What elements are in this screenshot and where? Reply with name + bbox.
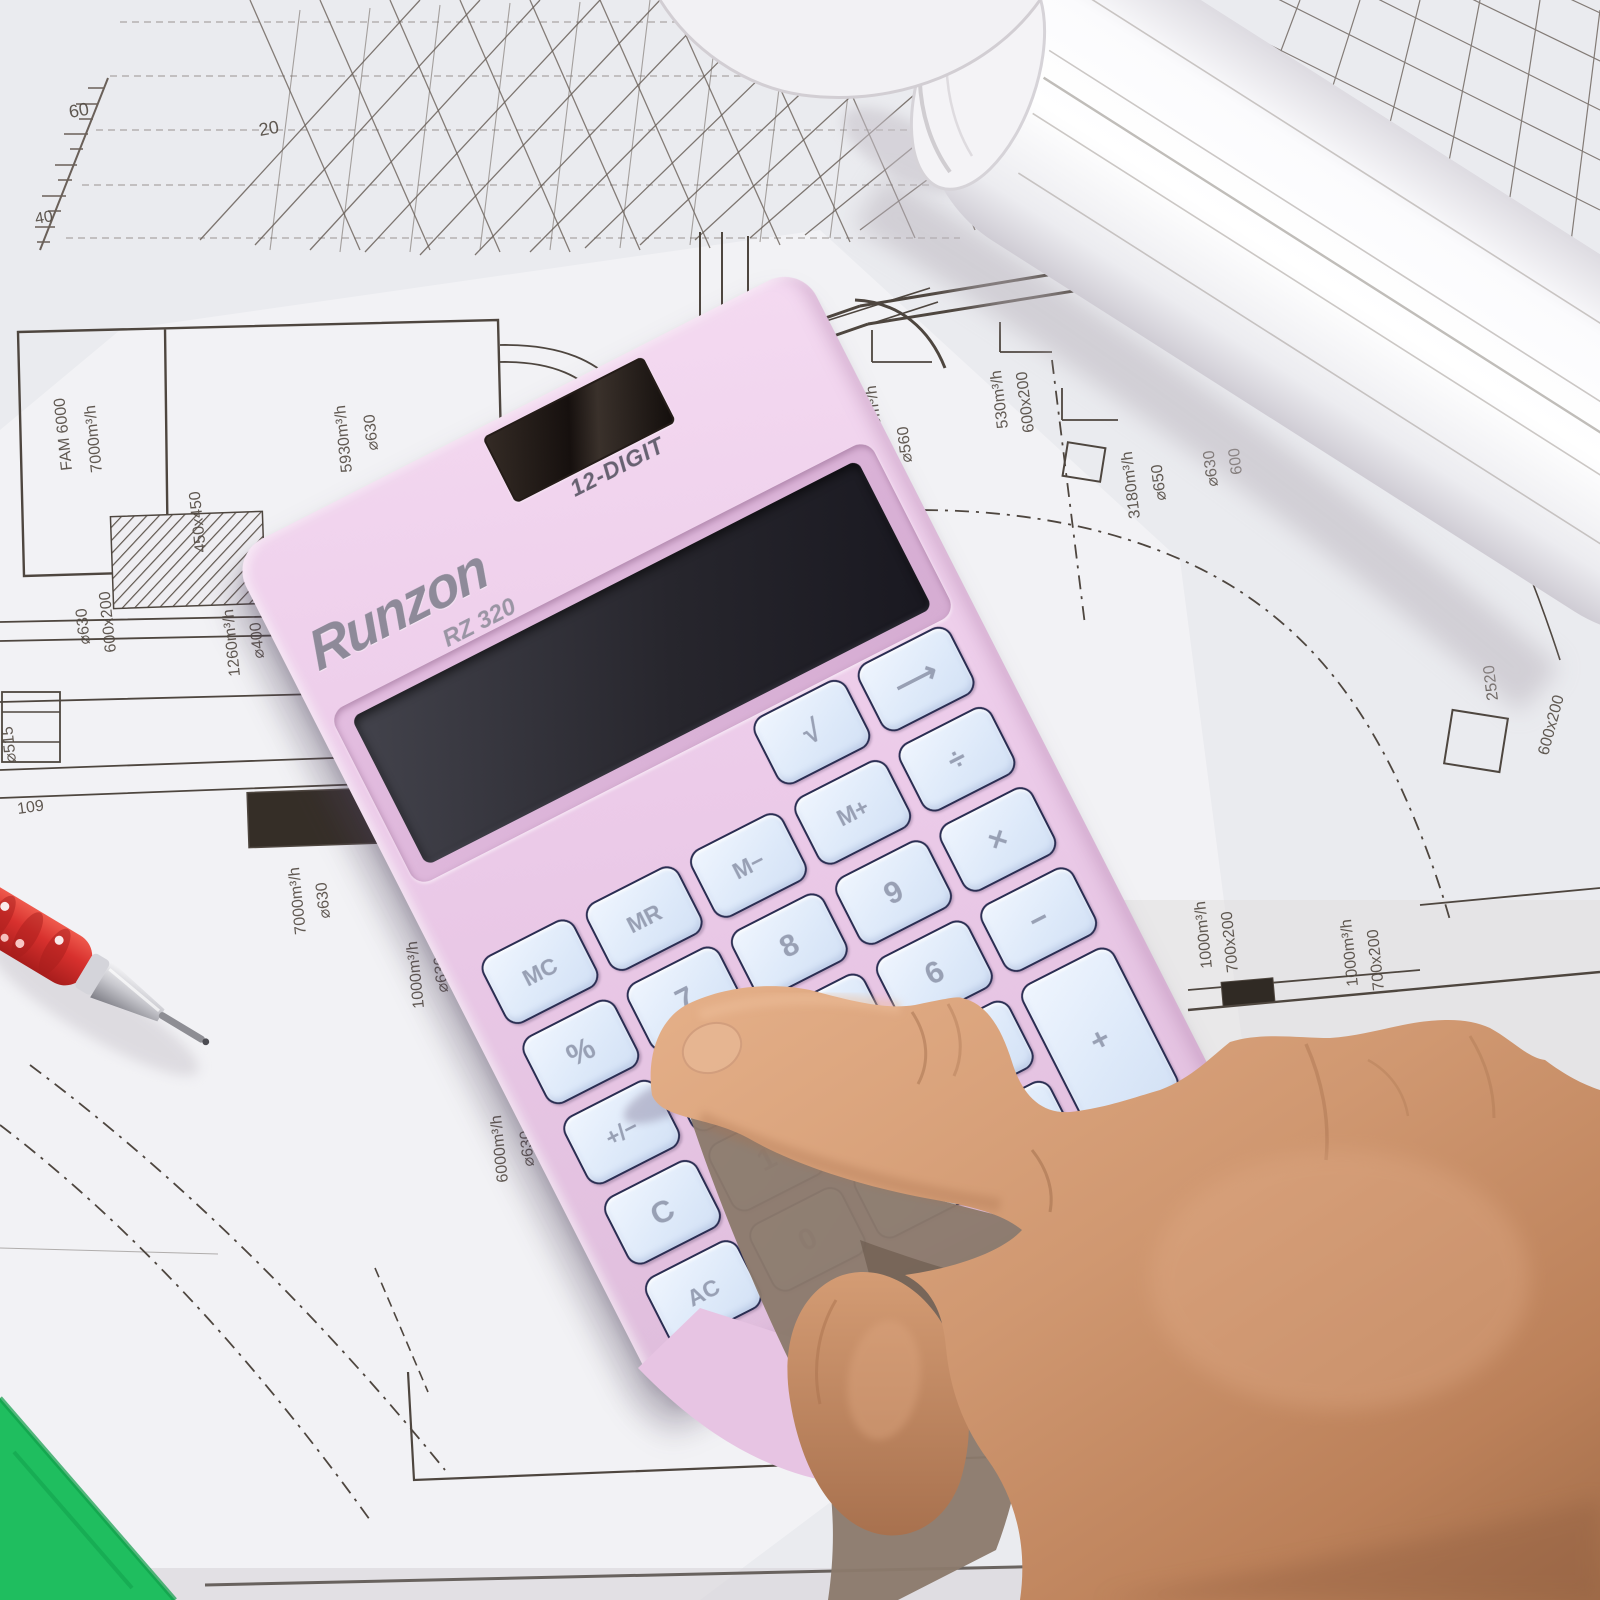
photo-scene: 60 20 40 FAM 6000 7000m³/h 5930m³/h ⌀630… — [0, 0, 1600, 1600]
blueprint-label: 20 — [257, 117, 280, 140]
blueprint-label: 60 — [67, 99, 90, 122]
blueprint-label: 40 — [34, 208, 55, 228]
